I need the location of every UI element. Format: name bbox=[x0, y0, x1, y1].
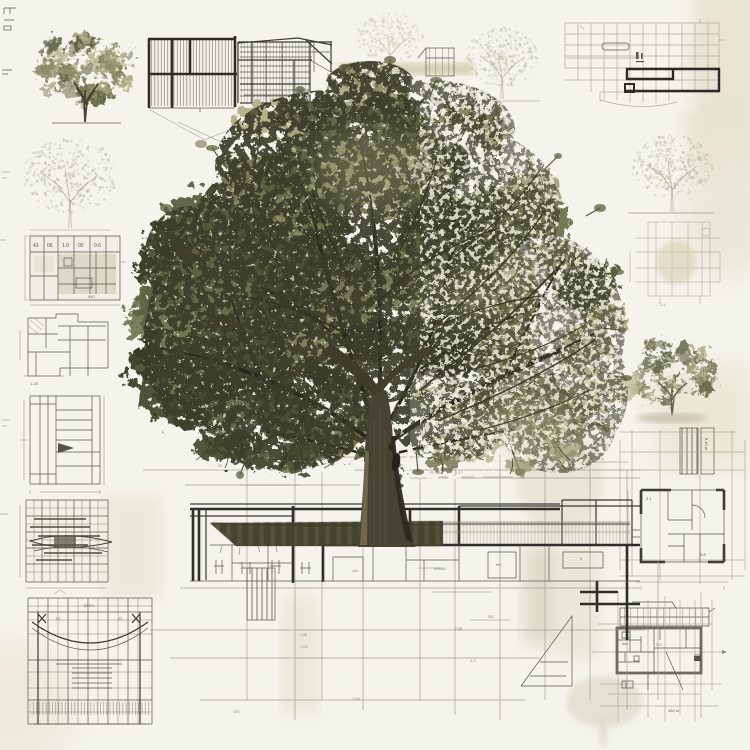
svg-text:02: 02 bbox=[118, 616, 123, 621]
svg-text:06: 06 bbox=[47, 243, 53, 249]
svg-text:1.06: 1.06 bbox=[352, 696, 361, 701]
svg-text:101: 101 bbox=[352, 569, 358, 573]
svg-text:1.0: 1.0 bbox=[62, 243, 69, 249]
svg-text:41: 41 bbox=[218, 463, 223, 468]
svg-text:1.03: 1.03 bbox=[300, 633, 307, 637]
svg-text:43: 43 bbox=[33, 243, 39, 249]
svg-text:1-28: 1-28 bbox=[30, 381, 39, 386]
svg-text:WC: WC bbox=[496, 563, 502, 567]
svg-text:3.2: 3.2 bbox=[656, 642, 662, 647]
svg-text:7.03: 7.03 bbox=[300, 644, 309, 649]
svg-text:0.6: 0.6 bbox=[94, 243, 101, 249]
svg-text:LIVING: LIVING bbox=[434, 567, 446, 571]
svg-text:01: 01 bbox=[56, 616, 61, 621]
svg-text:4.2: 4.2 bbox=[470, 658, 476, 663]
svg-text:1.4: 1.4 bbox=[660, 302, 666, 307]
svg-text:301: 301 bbox=[488, 615, 494, 619]
svg-text:1.8: 1.8 bbox=[700, 552, 706, 557]
svg-text:2.05: 2.05 bbox=[455, 627, 462, 631]
svg-text:05: 05 bbox=[78, 243, 84, 249]
svg-text:2.1: 2.1 bbox=[646, 496, 652, 501]
svg-text:180 m: 180 m bbox=[668, 708, 680, 713]
svg-text:940: 940 bbox=[88, 294, 95, 299]
svg-text:120: 120 bbox=[233, 709, 240, 714]
svg-text:8.10 m: 8.10 m bbox=[704, 438, 709, 451]
svg-text:ELEV: ELEV bbox=[84, 603, 95, 608]
